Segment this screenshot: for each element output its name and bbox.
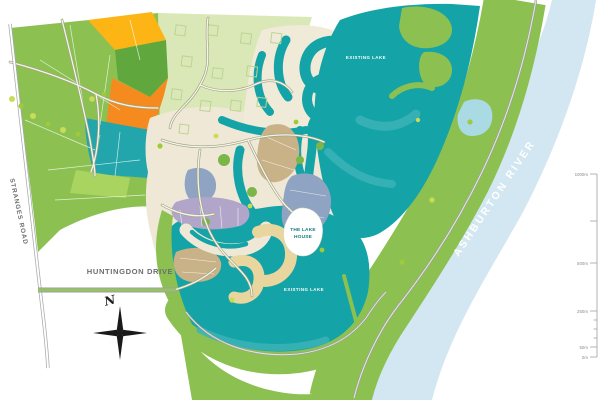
compass-rose: N <box>93 292 147 360</box>
compass-center <box>119 332 122 335</box>
map-canvas[interactable]: THE LAKE HOUSE 1000m 500m 250m 50m 0m N <box>0 0 600 400</box>
svg-text:50m: 50m <box>579 345 588 350</box>
compass-north-label: N <box>102 292 118 309</box>
svg-text:500m: 500m <box>577 261 588 266</box>
south-lake-label: EXISTING LAKE <box>284 287 324 292</box>
lake-house-label-1: THE LAKE <box>290 227 316 233</box>
lake-house-label-2: HOUSE <box>294 234 313 240</box>
masterplan-map[interactable]: THE LAKE HOUSE 1000m 500m 250m 50m 0m N <box>0 0 600 400</box>
svg-text:1000m: 1000m <box>575 172 589 177</box>
scale-bar-labels: 1000m 500m 250m 50m 0m <box>575 172 589 360</box>
huntingdon-drive-label: HUNTINGDON DRIVE <box>87 267 173 276</box>
stranges-road-label: STRANGES ROAD <box>8 178 29 246</box>
scale-bar <box>590 174 597 357</box>
svg-text:250m: 250m <box>577 309 588 314</box>
svg-text:0m: 0m <box>582 355 588 360</box>
north-lake-label: EXISTING LAKE <box>346 55 386 60</box>
